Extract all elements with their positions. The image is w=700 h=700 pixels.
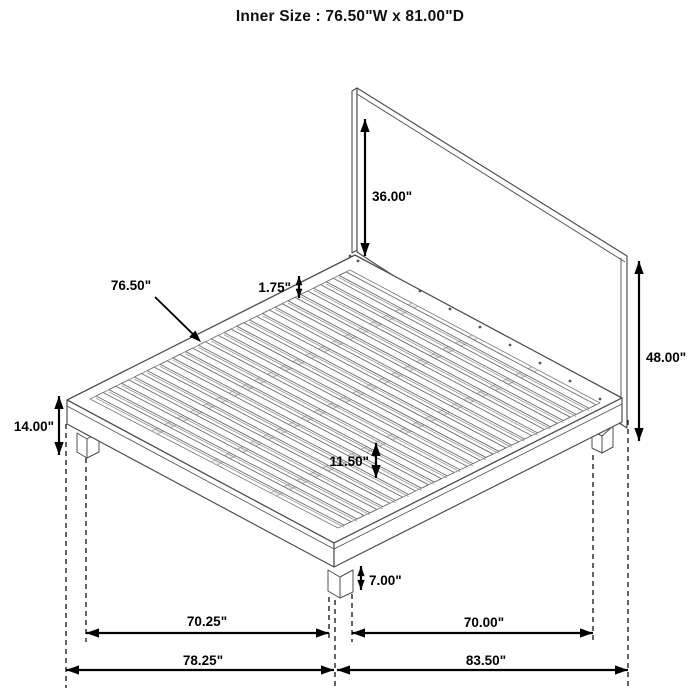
headboard-left-edge [352, 88, 357, 253]
arrowhead [296, 276, 303, 285]
isometric-bed-drawing: 36.00"48.00"14.00"1.75"11.50"7.00"70.25"… [0, 0, 700, 700]
arrowhead [615, 665, 628, 674]
screw-dot [357, 260, 360, 263]
arrowhead [357, 580, 364, 590]
arrowhead [54, 396, 63, 409]
dimension-label-headboard-panel-height: 36.00" [372, 189, 412, 204]
arrowhead [357, 566, 364, 576]
arrowhead [337, 665, 350, 674]
dimension-label-front-width: 70.25" [187, 614, 227, 629]
dimension-label-overall-width: 78.25" [183, 653, 223, 668]
dimension-label-slat-width: 76.50" [111, 278, 151, 293]
dimension-label-side-depth: 70.00" [464, 615, 504, 630]
screw-dot [449, 308, 452, 311]
arrowhead [54, 442, 63, 455]
dimension-label-leg-height: 7.00" [369, 573, 402, 588]
screw-dot [539, 362, 542, 365]
dimension-side-depth: 70.00" [352, 615, 593, 638]
dimension-slat-width: 76.50" [111, 278, 201, 342]
arrowhead [634, 428, 643, 441]
screw-dot [349, 255, 352, 258]
dimension-platform-height: 14.00" [14, 396, 64, 455]
dimension-leg-height: 7.00" [357, 566, 401, 590]
arrowhead [321, 665, 334, 674]
arrowhead [316, 628, 329, 637]
screw-dot [599, 398, 602, 401]
bed-dimension-diagram-page: Inner Size : 76.50"W x 81.00"D 36.00"48.… [0, 0, 700, 700]
dimension-label-under-bed-clearance: 11.50" [330, 454, 369, 469]
arrowhead [580, 628, 593, 637]
arrowhead [66, 665, 79, 674]
dimension-label-slat-spacing: 1.75" [258, 280, 291, 295]
leg-face [77, 433, 87, 458]
dimension-label-overall-depth: 83.50" [466, 653, 506, 668]
leg-face [340, 570, 353, 598]
arrowhead [634, 261, 643, 274]
arrowhead [86, 628, 99, 637]
screw-dot [419, 290, 422, 293]
dimension-headboard-total-height: 48.00" [634, 261, 686, 441]
leg-face [328, 570, 340, 598]
screw-dot [569, 380, 572, 383]
screw-dot [479, 326, 482, 329]
dimension-overall-width: 78.25" [66, 653, 334, 675]
dimension-label-headboard-total-height: 48.00" [646, 350, 686, 365]
dimension-front-width: 70.25" [86, 614, 329, 638]
screw-dot [509, 344, 512, 347]
arrowhead [352, 628, 365, 637]
dimension-overall-depth: 83.50" [337, 653, 628, 675]
dimension-label-platform-height: 14.00" [14, 419, 54, 434]
